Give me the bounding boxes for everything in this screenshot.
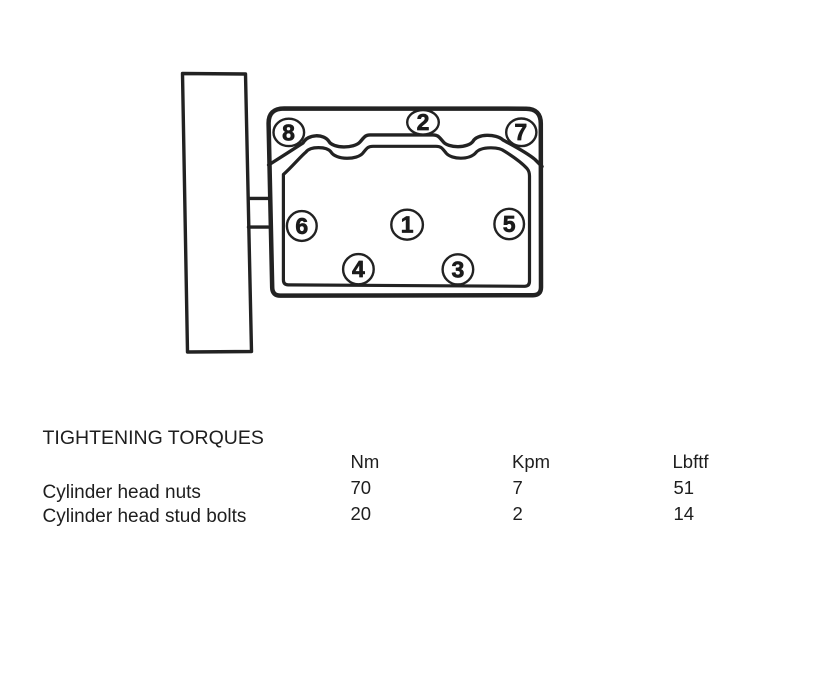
svg-text:5: 5 <box>503 211 516 237</box>
svg-text:8: 8 <box>282 119 295 145</box>
svg-text:6: 6 <box>295 213 308 239</box>
svg-text:7: 7 <box>514 119 527 145</box>
svg-text:2: 2 <box>417 109 430 135</box>
svg-text:4: 4 <box>352 256 365 282</box>
svg-text:1: 1 <box>401 212 414 238</box>
svg-text:3: 3 <box>452 256 465 282</box>
